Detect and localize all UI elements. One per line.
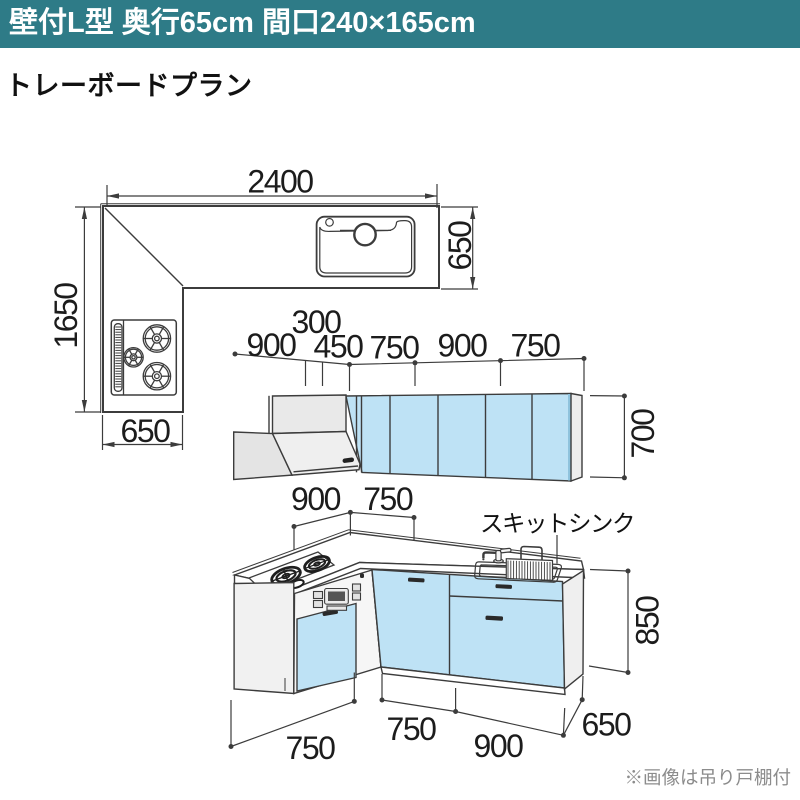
svg-text:900: 900	[438, 328, 488, 364]
svg-text:750: 750	[370, 330, 420, 366]
svg-text:900: 900	[291, 481, 341, 517]
svg-text:450: 450	[314, 329, 364, 365]
svg-text:650: 650	[442, 221, 478, 271]
svg-text:750: 750	[511, 328, 561, 364]
svg-text:750: 750	[363, 481, 413, 517]
svg-text:650: 650	[582, 707, 632, 743]
svg-text:850: 850	[630, 596, 666, 646]
svg-text:1650: 1650	[48, 283, 84, 349]
svg-text:750: 750	[286, 730, 336, 766]
svg-text:900: 900	[247, 327, 297, 363]
svg-text:650: 650	[121, 413, 171, 449]
svg-text:700: 700	[625, 409, 661, 459]
svg-text:スキットシンク: スキットシンク	[480, 511, 634, 537]
svg-text:750: 750	[387, 711, 437, 747]
svg-text:900: 900	[474, 728, 524, 764]
svg-text:2400: 2400	[247, 164, 313, 200]
